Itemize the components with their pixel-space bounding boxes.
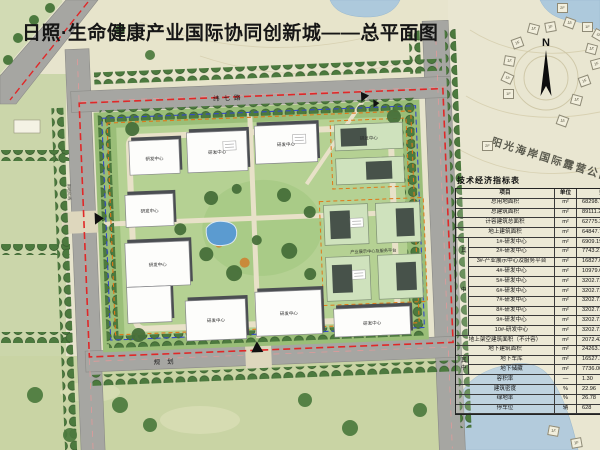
cell-value: 1.30 [577, 375, 600, 385]
cabin-marker: 1F [503, 89, 514, 99]
master-plan-page: { "title": "日照·生命健康产业国际协同创新城——总平面图", "ma… [0, 0, 600, 450]
cabin-marker: 1F [570, 437, 583, 449]
cell-unit: m² [555, 258, 577, 268]
cell-item: 4#-研发中心 [469, 267, 555, 277]
cell-unit: m² [555, 365, 577, 375]
cell-item: 6#-研发中心 [469, 287, 555, 297]
cell-value: 3202.71 [577, 326, 600, 336]
cell-item: 计容建筑总面积 [456, 218, 555, 228]
cabin-marker: 2F [557, 3, 568, 13]
cell-unit: m² [555, 346, 577, 356]
cell-item: 绿地率 [456, 395, 555, 405]
cell-value: 22.96 [577, 385, 600, 395]
cell-unit: m² [555, 287, 577, 297]
cell-unit: m² [555, 336, 577, 346]
cabin-marker: 1F [590, 58, 600, 71]
small-building [14, 120, 40, 133]
cell-unit: m² [555, 297, 577, 307]
tree-row [0, 332, 70, 343]
indicator-table: 技术经济指标表 项目 单位 数值 总用地面积m²68298.7 总建筑面积m²8… [455, 175, 600, 415]
cell-unit: m² [555, 248, 577, 258]
cell-value: 7743.21 [577, 248, 600, 258]
cell-value: 3202.71 [577, 307, 600, 317]
cell-unit: m² [555, 209, 577, 219]
cell-value: 2072.43 [577, 336, 600, 346]
cell-item: 5#-研发中心 [469, 277, 555, 287]
cell-item: 2#-研发中心 [469, 248, 555, 258]
cell-value: 3202.71 [577, 287, 600, 297]
cell-item: 地上建筑面积 [456, 228, 555, 238]
cabin-marker: 2F [482, 141, 493, 151]
cell-unit: m² [555, 307, 577, 317]
col-header-unit: 单位 [555, 189, 577, 199]
cell-item: 1#-研发中心 [469, 238, 555, 248]
cabin-marker: 1F [503, 55, 516, 67]
cell-value: 24263.10 [577, 346, 600, 356]
cell-value: 3202.71 [577, 316, 600, 326]
cell-value: 26.78 [577, 395, 600, 405]
field-patch [160, 406, 240, 434]
cell-unit: 辆 [555, 405, 577, 415]
cell-unit: m² [555, 267, 577, 277]
cell-value: 89111.2 [577, 209, 600, 219]
among-which-cell: 其中 [456, 356, 469, 376]
cell-item: 10#-研发中心 [469, 326, 555, 336]
cell-unit: m² [555, 277, 577, 287]
cell-value: 16527.1 [577, 356, 600, 366]
cell-unit: m² [555, 356, 577, 366]
cell-value: 3202.71 [577, 277, 600, 287]
cell-item: 地上架空建筑面积（不计容） [456, 336, 555, 346]
cell-item: 3#-产业展示中心及服务平台 [469, 258, 555, 268]
cell-item: 9#-研发中心 [469, 316, 555, 326]
cabin-marker: 1F [582, 22, 593, 32]
cell-unit: m² [555, 218, 577, 228]
cell-item: 7#-研发中心 [469, 297, 555, 307]
cell-value: 16827.02 [577, 258, 600, 268]
cell-item: 8#-研发中心 [469, 307, 555, 317]
cell-unit: m² [555, 316, 577, 326]
cell-unit: m² [555, 238, 577, 248]
cell-unit: m² [555, 228, 577, 238]
cell-value: 10979.6 [577, 267, 600, 277]
cell-item: 地下建筑面积 [456, 346, 555, 356]
col-header-item: 项目 [456, 189, 555, 199]
cell-unit: m² [555, 326, 577, 336]
among-which-cell: 其中 [456, 238, 469, 336]
cell-value: 7736.00 [577, 365, 600, 375]
cell-item: 容积率 [456, 375, 555, 385]
cell-unit: m² [555, 199, 577, 209]
courtyard-pond [206, 221, 237, 247]
cell-unit: % [555, 385, 577, 395]
cell-value: 628 [577, 405, 600, 415]
cell-item: 总建筑面积 [456, 209, 555, 219]
table-title: 技术经济指标表 [457, 175, 600, 186]
cell-item: 地下储藏 [469, 365, 555, 375]
cell-value: 68298.7 [577, 199, 600, 209]
cell-item: 地下车库 [469, 356, 555, 366]
cell-item: 停车位 [456, 405, 555, 415]
cell-unit: % [555, 395, 577, 405]
col-header-value: 数值 [577, 189, 600, 199]
page-title: 日照·生命健康产业国际协同创新城——总平面图 [22, 18, 438, 45]
cell-item: 建筑密度 [456, 385, 555, 395]
cell-value: 64847.7 [577, 228, 600, 238]
cell-item: 总用地面积 [456, 199, 555, 209]
cabin-marker: 1F [544, 21, 557, 33]
compass-north-label: N [542, 37, 550, 49]
cell-value: 6909.19 [577, 238, 600, 248]
cell-value: 62775.3 [577, 218, 600, 228]
cabin-marker: 1F [547, 425, 560, 437]
cell-value: 3202.71 [577, 297, 600, 307]
table-grid: 项目 单位 数值 总用地面积m²68298.7 总建筑面积m²89111.2 计… [455, 188, 600, 415]
cell-unit: — [555, 375, 577, 385]
